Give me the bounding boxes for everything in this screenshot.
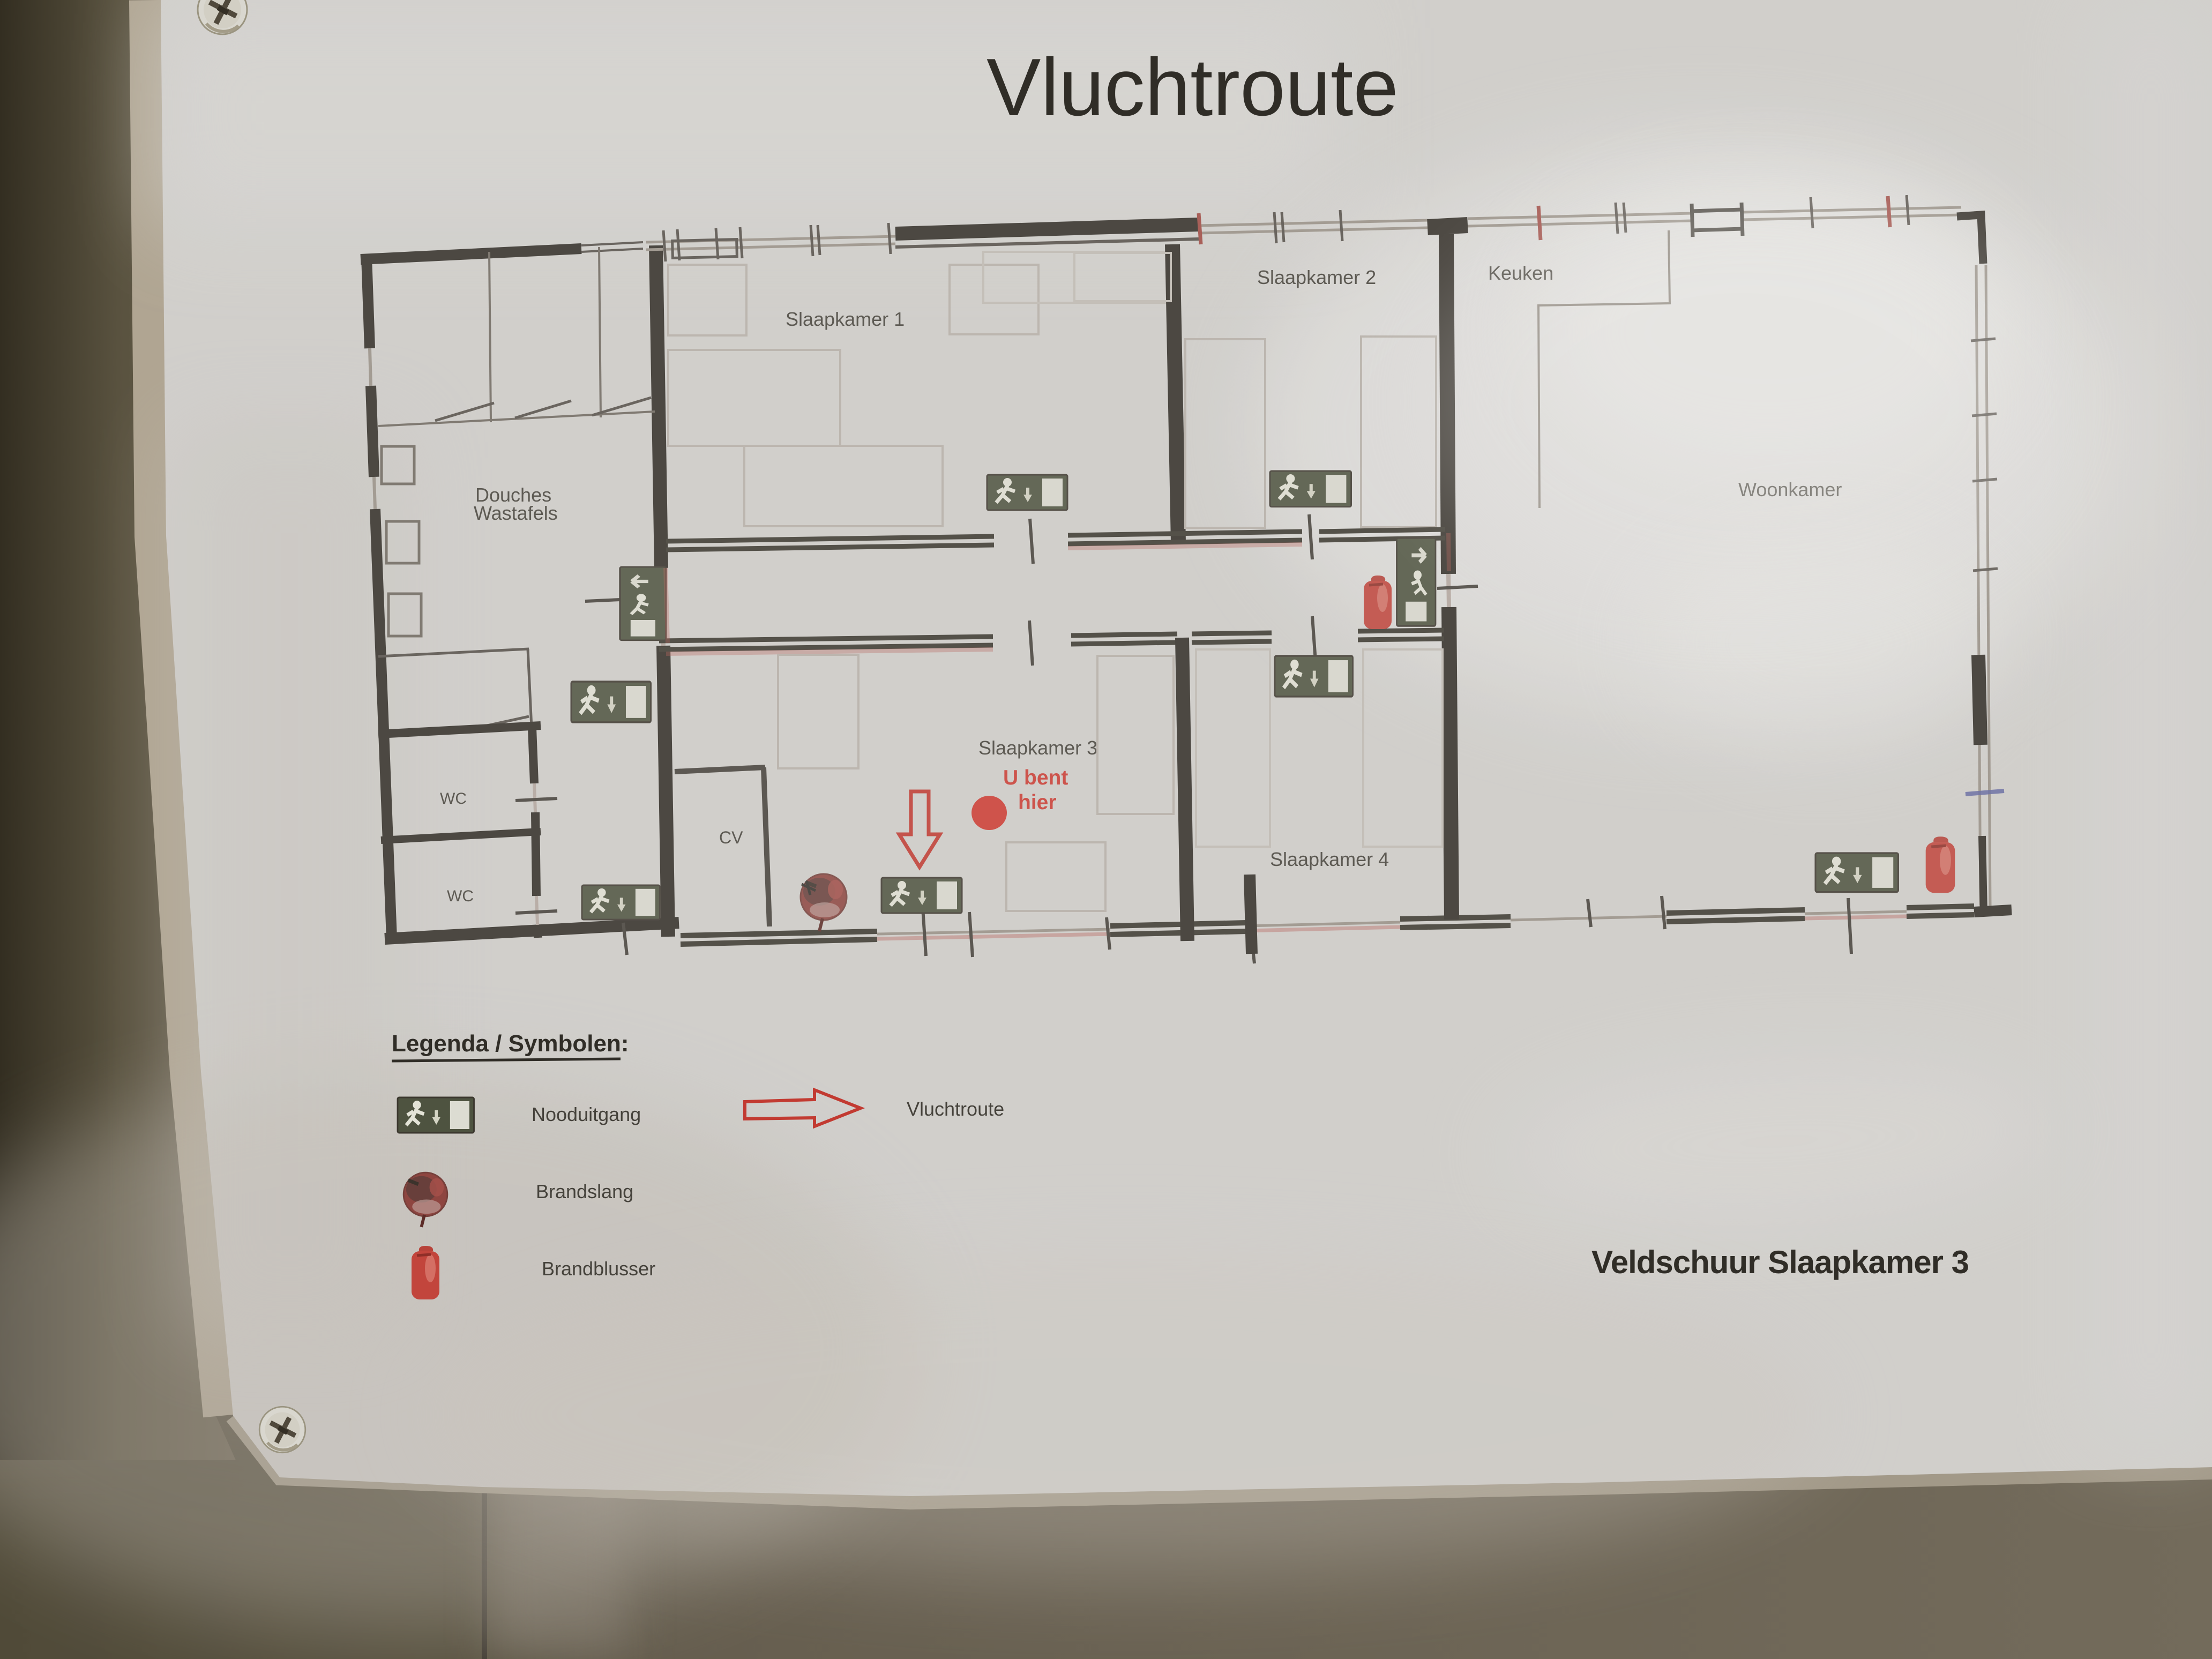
svg-text:Vluchtroute: Vluchtroute <box>987 42 1399 133</box>
svg-text:Legenda / Symbolen:: Legenda / Symbolen: <box>392 1030 629 1057</box>
svg-text:Veldschuur Slaapkamer 3: Veldschuur Slaapkamer 3 <box>1591 1244 1969 1280</box>
svg-text:Vluchtroute: Vluchtroute <box>907 1098 1004 1120</box>
svg-text:Brandblusser: Brandblusser <box>542 1258 655 1280</box>
svg-text:Brandslang: Brandslang <box>536 1180 633 1202</box>
svg-text:Nooduitgang: Nooduitgang <box>532 1103 641 1125</box>
